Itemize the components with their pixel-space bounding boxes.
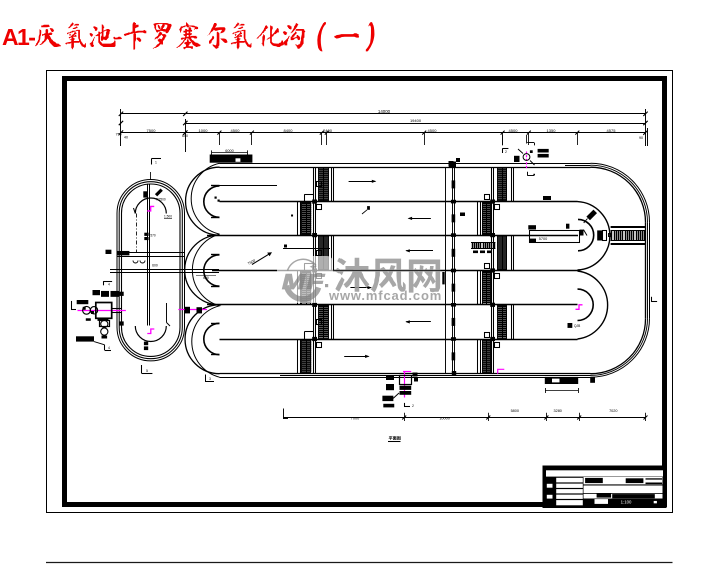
svg-text:7020: 7020 xyxy=(609,409,617,413)
svg-text:14000: 14000 xyxy=(378,109,391,114)
svg-text:8400: 8400 xyxy=(284,128,294,133)
svg-text:4575: 4575 xyxy=(607,128,617,133)
svg-text:2400: 2400 xyxy=(323,128,333,133)
svg-text:2: 2 xyxy=(412,404,414,408)
svg-text:3280: 3280 xyxy=(553,409,561,413)
svg-text:7500: 7500 xyxy=(147,128,157,133)
svg-text:MF: MF xyxy=(279,270,328,294)
svg-text:1350: 1350 xyxy=(547,128,557,133)
svg-text:5: 5 xyxy=(146,369,148,373)
svg-text:6000: 6000 xyxy=(225,149,233,153)
svg-text:QJB: QJB xyxy=(574,324,580,328)
svg-text:40: 40 xyxy=(124,135,128,139)
svg-text:750: 750 xyxy=(116,133,122,137)
svg-text:600: 600 xyxy=(203,276,209,280)
svg-text:10000: 10000 xyxy=(439,417,450,421)
svg-text:4: 4 xyxy=(108,346,110,350)
svg-text:2: 2 xyxy=(505,150,507,154)
svg-text:1000: 1000 xyxy=(199,128,209,133)
svg-text:4500: 4500 xyxy=(509,128,519,133)
svg-text:5700: 5700 xyxy=(539,237,547,241)
svg-text:600: 600 xyxy=(182,134,188,138)
svg-text:1.500: 1.500 xyxy=(164,214,172,218)
svg-text:4500: 4500 xyxy=(428,128,438,133)
svg-text:5800: 5800 xyxy=(511,409,519,413)
svg-text:1: 1 xyxy=(155,161,157,165)
svg-text:www.mfcad.com: www.mfcad.com xyxy=(328,288,442,303)
svg-text:3: 3 xyxy=(209,377,211,381)
svg-text:90: 90 xyxy=(639,136,643,140)
svg-text:600: 600 xyxy=(152,264,158,268)
svg-text:1:100: 1:100 xyxy=(621,500,632,505)
svg-text:R2500: R2500 xyxy=(156,198,166,202)
svg-text:570: 570 xyxy=(150,234,156,238)
svg-text:4: 4 xyxy=(108,283,110,287)
svg-text:4500: 4500 xyxy=(231,128,241,133)
svg-text:A1-: A1- xyxy=(2,24,35,50)
svg-text:19400: 19400 xyxy=(410,118,422,123)
svg-text:7000: 7000 xyxy=(351,417,359,421)
